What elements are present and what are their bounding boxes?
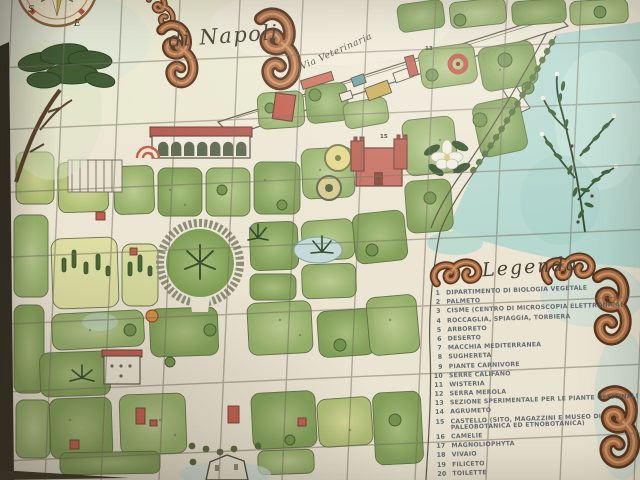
legend-item-number: 20 bbox=[437, 471, 446, 478]
legend-item-label: AGRUMETO bbox=[450, 408, 491, 416]
legend-item-number: 3 bbox=[432, 309, 441, 316]
legend-item-number: 13 bbox=[435, 401, 444, 408]
legend-item-number: 17 bbox=[436, 444, 445, 451]
legend-list: 1DIPARTIMENTO DI BIOLOGIA VEGETALE2PALME… bbox=[431, 284, 640, 478]
legend-item-label: WISTERIA bbox=[449, 381, 485, 389]
compass-letter-south: S bbox=[28, 5, 34, 15]
small-pond bbox=[82, 313, 118, 331]
legend-item-label: MAGNOLIOPHYTA bbox=[451, 441, 514, 450]
legend-item-number: 5 bbox=[432, 327, 441, 334]
map-marker-number: 11 bbox=[452, 169, 460, 175]
legend-item-number: 14 bbox=[435, 410, 444, 417]
legend-item-label: PIANTE CARNIVORE bbox=[449, 361, 520, 370]
legend-item-number: 2 bbox=[431, 300, 440, 307]
legend-item-label: VIVAIO bbox=[452, 452, 477, 459]
legend-item-number: 1 bbox=[431, 291, 440, 298]
legend-item-label: TOILETTE bbox=[452, 470, 487, 477]
legend-item-label: SERRE CALIFANO bbox=[449, 371, 511, 379]
compass-letter-east: E bbox=[74, 19, 81, 29]
legend-item-label: MACCHIA MEDITERRANEA bbox=[448, 342, 541, 352]
orange-feature bbox=[146, 310, 158, 322]
legend-item-number: 12 bbox=[435, 392, 444, 399]
legend-item-label: PALMETO bbox=[446, 298, 480, 305]
legend-item-number: 9 bbox=[434, 364, 443, 371]
tile-mural-photo: di Napoli Via Veterinaria S E Legenda 1D… bbox=[0, 0, 640, 480]
legend-item-number: 16 bbox=[436, 435, 445, 442]
map-marker-number: 15 bbox=[380, 134, 388, 140]
legend-item-number: 15 bbox=[435, 419, 444, 432]
legend-item-label: DESERTO bbox=[448, 335, 482, 342]
legend-item-number: 8 bbox=[433, 355, 442, 362]
palazzo-building bbox=[102, 350, 142, 384]
legend-item-label: CAMELIE bbox=[451, 433, 483, 440]
greenhouse-serre-califano bbox=[150, 127, 252, 158]
legend-item-number: 19 bbox=[437, 462, 446, 469]
legend-item-number: 10 bbox=[434, 373, 443, 380]
legend-item-number: 6 bbox=[433, 337, 442, 344]
legend-item-label: SUGHERETA bbox=[448, 353, 491, 361]
legend-panel: 1DIPARTIMENTO DI BIOLOGIA VEGETALE2PALME… bbox=[431, 284, 640, 480]
legend-item-label: FILICETO bbox=[452, 461, 485, 468]
legend-item-number: 18 bbox=[437, 453, 446, 460]
legend-item-label: SERRA MEROLA bbox=[450, 389, 507, 397]
map-marker-number: 13 bbox=[425, 46, 433, 52]
legend-item-number: 11 bbox=[434, 383, 443, 390]
legend-item-label: ARBORETO bbox=[447, 326, 487, 334]
legend-item-number: 7 bbox=[433, 346, 442, 353]
legend-item-number: 4 bbox=[432, 318, 441, 325]
pond bbox=[294, 237, 342, 263]
